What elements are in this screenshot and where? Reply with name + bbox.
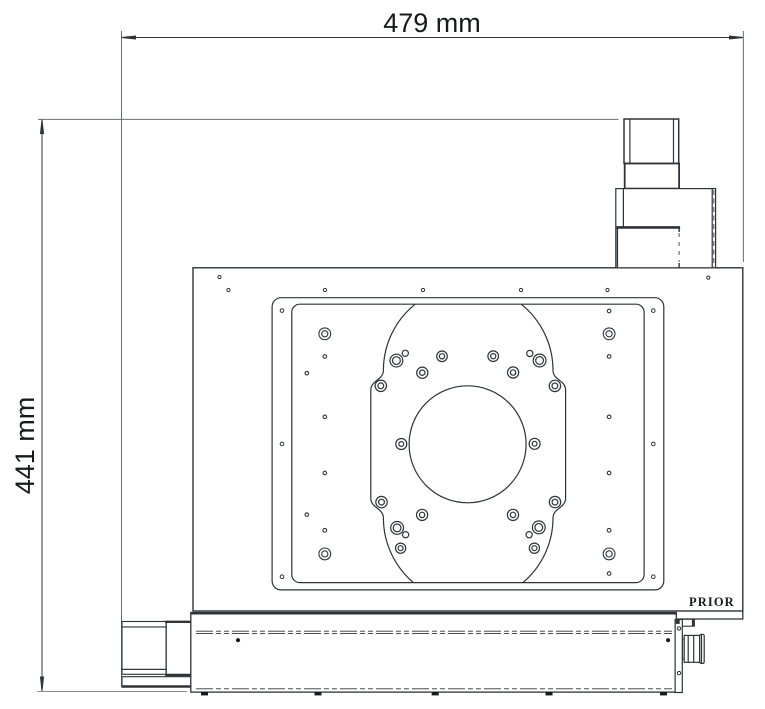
svg-text:479 mm: 479 mm (383, 8, 481, 38)
svg-text:PRIOR: PRIOR (689, 595, 735, 609)
svg-text:441 mm: 441 mm (10, 397, 40, 495)
